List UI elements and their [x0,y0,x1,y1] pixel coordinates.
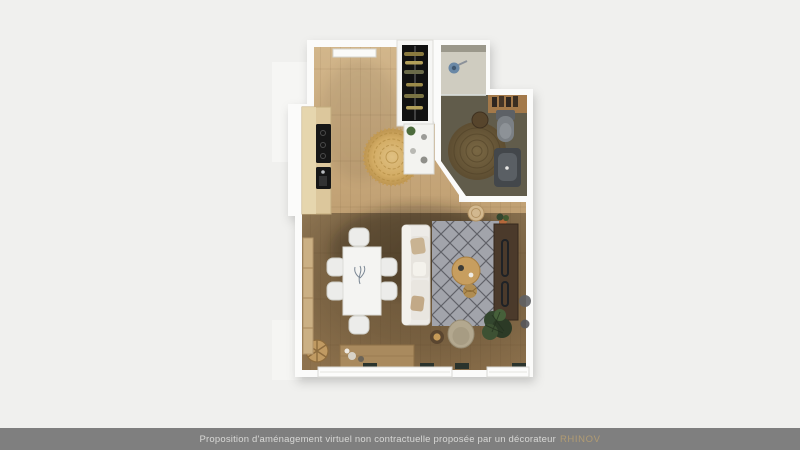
sofa-pillow [413,262,426,276]
coffee-table-decor [458,265,464,271]
screenshot-canvas: Proposition d'aménagement virtuel non co… [0,0,800,450]
footer-bar: Proposition d'aménagement virtuel non co… [0,428,800,450]
toilet [496,110,515,142]
kitchen-sink [316,167,331,189]
kitchen [302,107,331,214]
sideboard [494,224,518,320]
brand-text: RHINOV [560,434,601,445]
sofa [402,225,430,325]
coffee-table-decor [469,273,474,278]
window-sill-left [318,367,452,377]
console-plant [407,127,416,136]
bench-bowl [358,356,364,362]
shower-wall-shadow [441,45,486,52]
sofa-pillow [410,295,425,311]
washbasin [494,148,521,187]
floorplan-render [0,0,800,428]
bath-stool [472,112,488,128]
sofa-pillow [410,237,426,255]
entry-console [404,124,434,174]
disclaimer-text: Proposition d'aménagement virtuel non co… [199,434,555,445]
wardrobe [397,40,433,126]
coffee-table [452,257,480,285]
cooktop [316,124,331,163]
armchair [448,320,474,348]
pouf [463,284,477,298]
shower-tray [441,45,486,95]
dining-table [343,247,381,315]
window-sill-right [487,367,529,377]
laundry-basket [468,205,484,221]
wall-shelf-slim [303,238,313,354]
bench-bottle [345,349,350,354]
entrance-door [333,49,376,57]
side-table [430,330,444,344]
bench-bowl [348,352,356,360]
